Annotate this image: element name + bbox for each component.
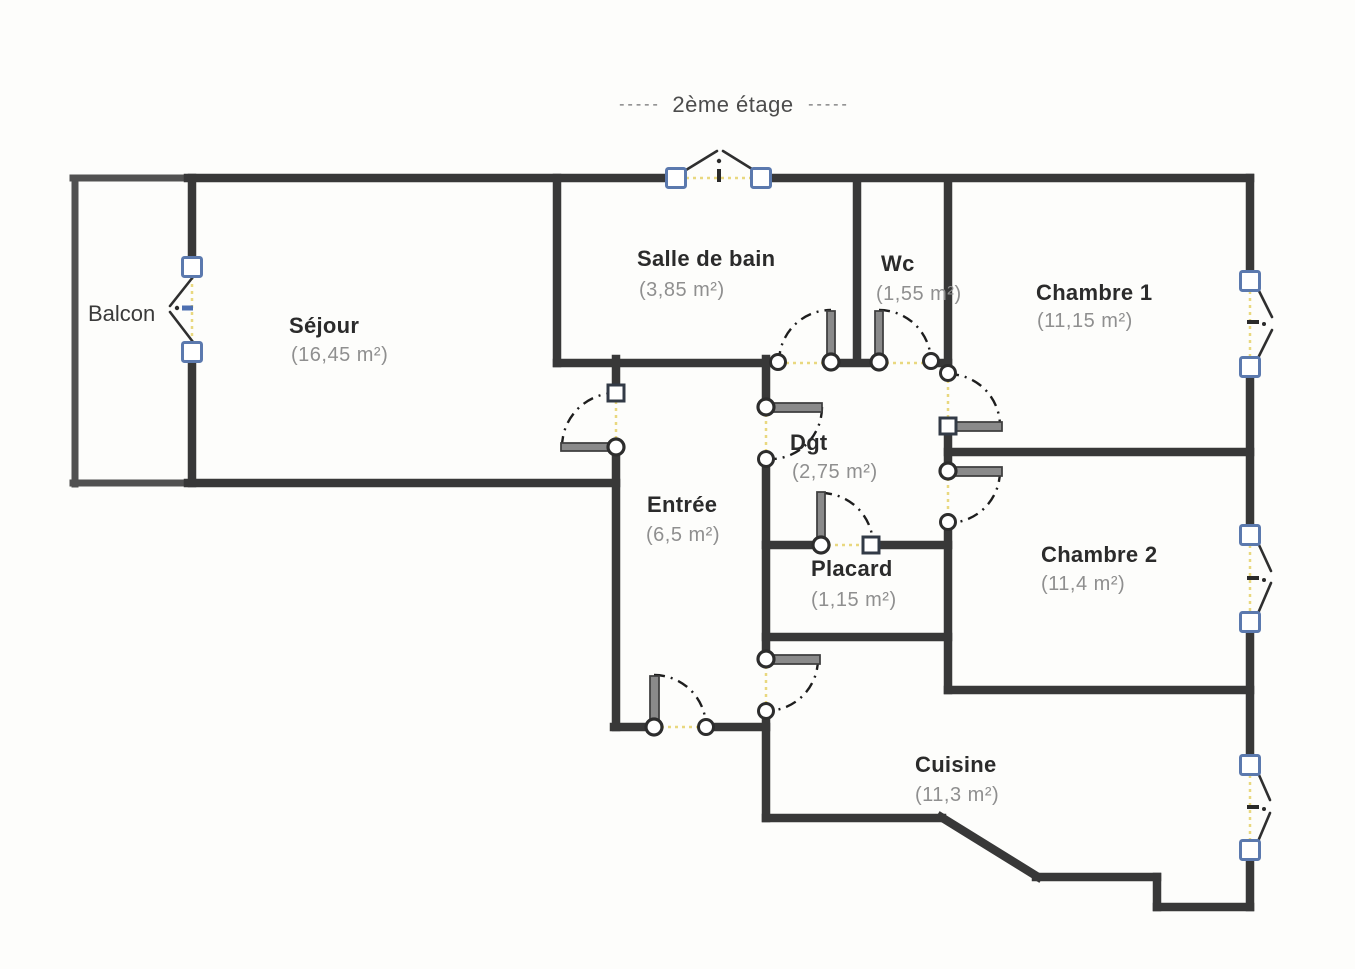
door-hinge: [813, 537, 829, 553]
door-leaf: [768, 403, 822, 412]
room-label-cuisine: Cuisine: [915, 752, 997, 777]
title-dashes-left: -----: [619, 96, 661, 113]
door-sejour: [561, 385, 624, 455]
window-casement-line: [1259, 583, 1271, 611]
door-entree-front: [646, 675, 714, 735]
room-label-salle-de-bain: Salle de bain: [637, 246, 775, 271]
window-cuisine: [1241, 756, 1271, 860]
door-cuisine: [758, 651, 820, 719]
door-wc: [871, 310, 939, 370]
door-jamb: [759, 452, 774, 467]
title-dashes-right: -----: [808, 96, 850, 113]
room-label-entree: Entrée: [647, 492, 717, 517]
window-mark: [717, 159, 721, 163]
door-leaf: [768, 655, 820, 664]
window-mark: [175, 306, 179, 310]
door-swing-arc: [779, 310, 831, 362]
door-swing-arc: [766, 659, 818, 711]
door-swing-arc: [654, 675, 706, 727]
window-chambre-1: [1241, 272, 1273, 377]
door-jamb: [759, 704, 774, 719]
floor-plan-drawing: ----- 2ème étage -----: [0, 0, 1355, 969]
door-placard: [813, 492, 879, 553]
floor-title: ----- 2ème étage -----: [619, 92, 850, 117]
door-jamb: [941, 515, 956, 530]
door-leaf: [875, 311, 883, 359]
floor-title-text: 2ème étage: [672, 92, 793, 117]
room-area-wc: (1,55 m²): [876, 283, 962, 305]
window-casement-line: [1259, 291, 1272, 317]
door-chambre-1: [940, 366, 1002, 435]
window-casement-line: [1259, 775, 1270, 800]
window-jamb: [183, 258, 202, 277]
door-jamb: [771, 355, 786, 370]
window-jamb: [1241, 841, 1260, 860]
door-jamb: [608, 385, 624, 401]
room-label-chambre-1: Chambre 1: [1036, 280, 1152, 305]
room-area-chambre-2: (11,4 m²): [1041, 573, 1125, 595]
window-jamb: [1241, 272, 1260, 291]
room-area-dgt: (2,75 m²): [792, 461, 878, 483]
window-casement-line: [1259, 813, 1270, 839]
window-casement-line: [1259, 330, 1272, 356]
balcony-walls: [73, 178, 190, 484]
window-balcon-french-door: [170, 258, 202, 362]
door-jamb: [924, 354, 939, 369]
window-mark: [1262, 807, 1266, 811]
window-casement-line: [170, 312, 193, 342]
door-chambre-2: [940, 463, 1002, 530]
window-casement-line: [1259, 545, 1271, 571]
door-leaf: [951, 467, 1002, 476]
window-jamb: [1241, 526, 1260, 545]
room-area-chambre-1: (11,15 m²): [1037, 310, 1133, 332]
door-leaf: [817, 492, 825, 543]
door-salle-de-bain: [771, 310, 840, 370]
window-jamb: [1241, 613, 1260, 632]
room-label-dgt: Dgt: [790, 430, 828, 455]
room-label-sejour: Séjour: [289, 313, 359, 338]
room-area-cuisine: (11,3 m²): [915, 784, 999, 806]
room-label-balcon: Balcon: [88, 301, 155, 326]
door-hinge: [823, 354, 839, 370]
room-label-wc: Wc: [881, 251, 915, 276]
room-label-chambre-2: Chambre 2: [1041, 542, 1157, 567]
door-hinge: [758, 651, 774, 667]
window-casement-line: [686, 151, 717, 170]
door-hinge: [940, 418, 956, 434]
door-hinge: [646, 719, 662, 735]
floor-plan-page: ----- 2ème étage -----: [0, 0, 1355, 969]
window-casement-line: [170, 277, 193, 306]
window-chambre-2: [1241, 526, 1272, 632]
window-casement-line: [723, 151, 752, 169]
door-hinge: [758, 399, 774, 415]
window-salle-de-bain-top: [667, 151, 771, 188]
window-jamb: [1241, 358, 1260, 377]
door-hinge: [940, 463, 956, 479]
door-hinge: [608, 439, 624, 455]
door-jamb: [699, 720, 714, 735]
room-area-salle-de-bain: (3,85 m²): [639, 279, 725, 301]
door-leaf: [951, 422, 1002, 431]
window-jamb: [752, 169, 771, 188]
room-labels: Balcon Séjour (16,45 m²) Salle de bain (…: [88, 246, 1157, 806]
room-area-sejour: (16,45 m²): [291, 344, 388, 366]
window-jamb: [667, 169, 686, 188]
window-jamb: [1241, 756, 1260, 775]
room-area-placard: (1,15 m²): [811, 589, 897, 611]
door-swing-arc: [948, 471, 1000, 523]
window-mark: [1262, 578, 1266, 582]
door-jamb: [941, 366, 956, 381]
door-swing-arc: [879, 310, 931, 362]
wall-segment: [941, 817, 1038, 877]
window-jamb: [183, 343, 202, 362]
door-leaf: [561, 443, 613, 451]
door-jamb: [863, 537, 879, 553]
door-leaf: [827, 311, 835, 359]
window-mark: [1262, 322, 1266, 326]
room-area-entree: (6,5 m²): [646, 524, 720, 546]
door-hinge: [871, 354, 887, 370]
room-label-placard: Placard: [811, 556, 893, 581]
opening-guides: [192, 178, 1250, 840]
